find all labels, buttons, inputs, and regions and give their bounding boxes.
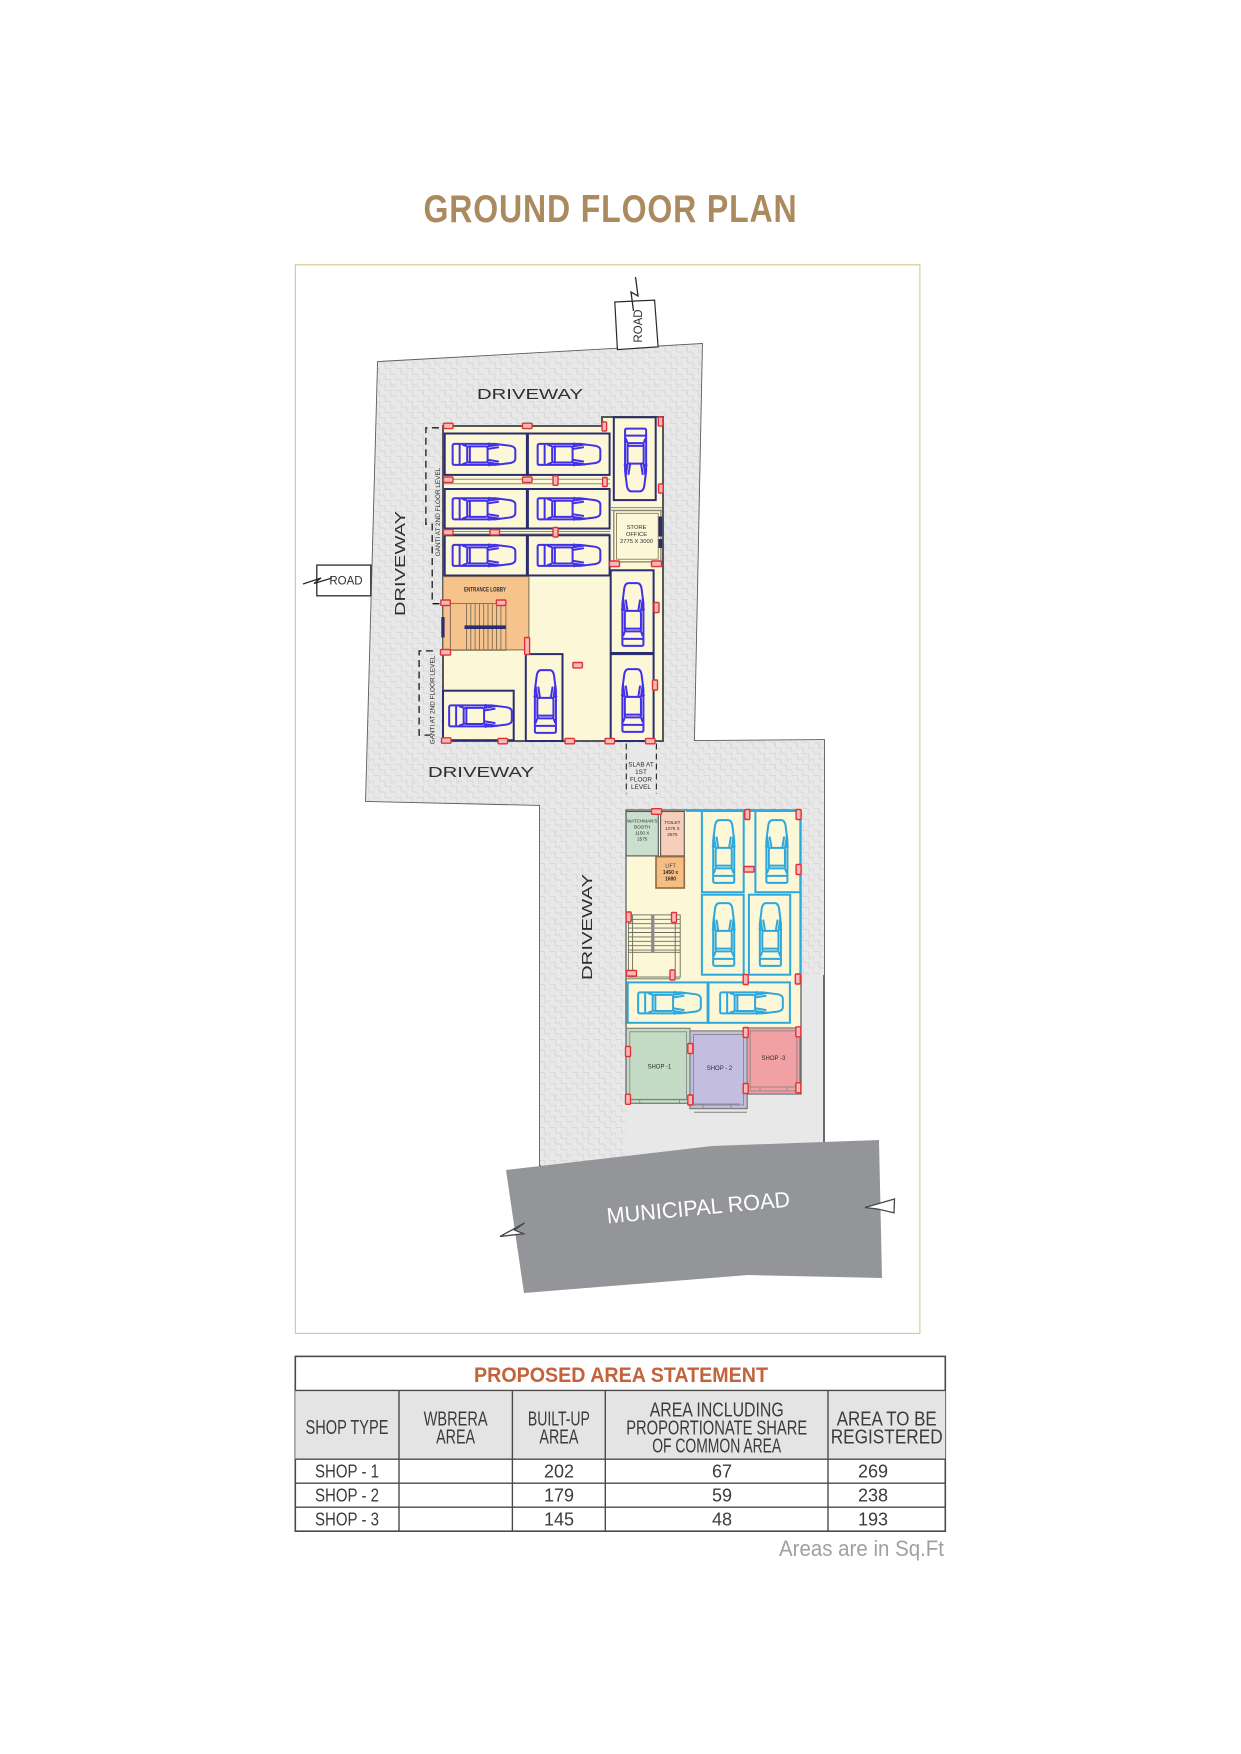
svg-text:1450 x: 1450 x	[663, 870, 679, 876]
svg-text:48: 48	[712, 1510, 732, 1530]
svg-text:DRIVEWAY: DRIVEWAY	[428, 765, 534, 781]
svg-text:Areas are in Sq.Ft: Areas are in Sq.Ft	[779, 1536, 945, 1561]
svg-text:FLOOR: FLOOR	[630, 777, 652, 784]
svg-text:179: 179	[544, 1486, 574, 1506]
svg-text:1ST: 1ST	[635, 769, 647, 776]
svg-text:REGISTERED: REGISTERED	[831, 1427, 943, 1449]
svg-text:1680: 1680	[665, 877, 676, 883]
svg-text:SLAB AT: SLAB AT	[628, 762, 654, 769]
svg-text:1150 X: 1150 X	[635, 831, 649, 836]
svg-text:SHOP -1: SHOP -1	[647, 1065, 672, 1071]
svg-text:STORE: STORE	[627, 525, 647, 531]
svg-text:269: 269	[858, 1462, 888, 1482]
svg-text:GROUND FLOOR PLAN: GROUND FLOOR PLAN	[424, 188, 798, 231]
svg-text:GANTI AT 2ND FLOOR LEVEL: GANTI AT 2ND FLOOR LEVEL	[430, 655, 437, 744]
svg-text:2575: 2575	[667, 832, 678, 837]
svg-text:DRIVEWAY: DRIVEWAY	[392, 511, 409, 616]
svg-text:PROPOSED AREA STATEMENT: PROPOSED AREA STATEMENT	[474, 1364, 768, 1387]
svg-text:202: 202	[544, 1462, 574, 1482]
svg-text:DRIVEWAY: DRIVEWAY	[579, 874, 596, 980]
svg-text:193: 193	[858, 1510, 888, 1530]
svg-text:145: 145	[544, 1510, 574, 1530]
svg-text:SHOP TYPE: SHOP TYPE	[306, 1417, 389, 1439]
svg-text:67: 67	[712, 1462, 732, 1482]
svg-text:ENTRANCE LOBBY: ENTRANCE LOBBY	[464, 587, 507, 594]
svg-text:AREA: AREA	[436, 1427, 475, 1449]
svg-text:2775 X 3000: 2775 X 3000	[620, 539, 653, 545]
svg-text:238: 238	[858, 1486, 888, 1506]
svg-text:TOILET: TOILET	[664, 820, 680, 825]
svg-text:SHOP -3: SHOP -3	[762, 1056, 787, 1062]
svg-text:DRIVEWAY: DRIVEWAY	[477, 387, 583, 403]
svg-text:SHOP - 1: SHOP - 1	[315, 1462, 379, 1482]
svg-text:OFFICE: OFFICE	[626, 532, 647, 538]
svg-text:OF COMMON AREA: OF COMMON AREA	[652, 1436, 781, 1458]
svg-text:GANTI AT 2ND FLOOR LEVEL: GANTI AT 2ND FLOOR LEVEL	[435, 467, 442, 556]
svg-text:ROAD: ROAD	[633, 309, 645, 342]
svg-text:2575: 2575	[637, 837, 648, 842]
svg-text:SHOP - 3: SHOP - 3	[315, 1510, 379, 1530]
svg-text:LEVEL: LEVEL	[631, 784, 651, 791]
svg-text:LIFT: LIFT	[665, 864, 675, 870]
svg-text:ROAD: ROAD	[329, 576, 362, 588]
svg-text:1275 X: 1275 X	[665, 826, 680, 831]
svg-text:SHOP - 2: SHOP - 2	[707, 1066, 733, 1072]
svg-text:WATCHMAN'S: WATCHMAN'S	[627, 819, 657, 824]
svg-text:AREA: AREA	[539, 1427, 578, 1449]
svg-text:59: 59	[712, 1486, 732, 1506]
svg-text:BOOTH: BOOTH	[634, 825, 650, 830]
svg-text:SHOP - 2: SHOP - 2	[315, 1486, 379, 1506]
